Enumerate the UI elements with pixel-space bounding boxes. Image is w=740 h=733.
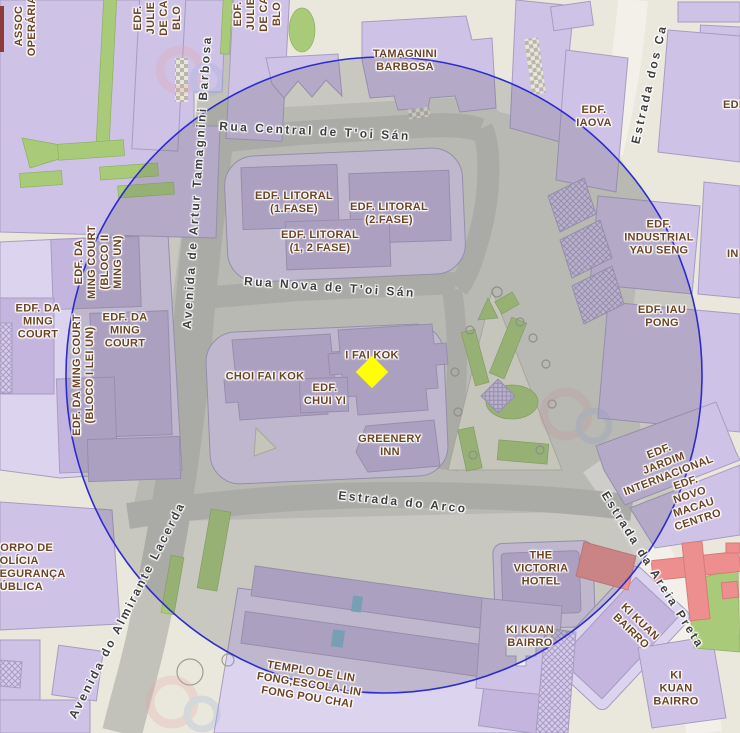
clipped-label-strip <box>0 6 4 52</box>
map-canvas[interactable]: Rua Central de T'oi Sán Rua Nova de T'oi… <box>0 0 740 733</box>
